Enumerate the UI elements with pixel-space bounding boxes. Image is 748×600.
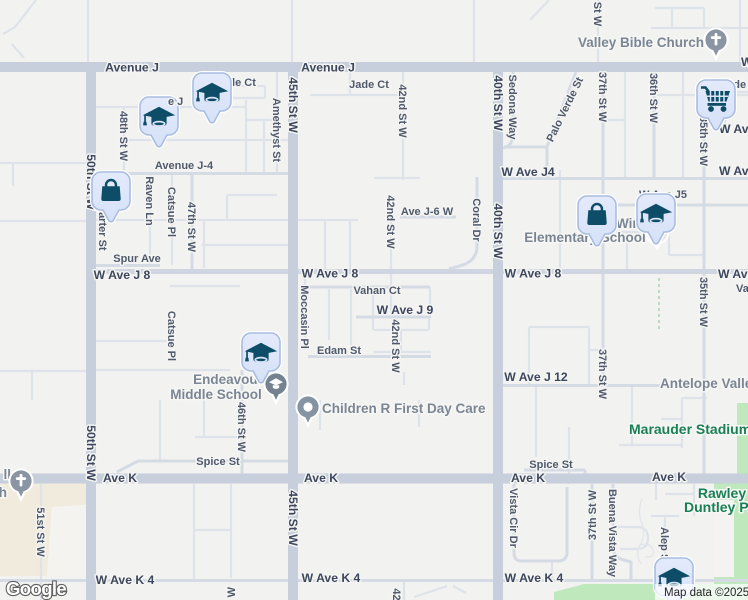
svg-text:W Ave J4: W Ave J4 — [719, 164, 748, 178]
svg-text:Edam St: Edam St — [317, 345, 361, 357]
svg-text:W Ave J 9: W Ave J 9 — [377, 303, 434, 317]
svg-text:Ave K: Ave K — [304, 471, 338, 485]
svg-text:W Ave: W Ave — [741, 55, 748, 69]
svg-text:Spur Ave: Spur Ave — [113, 253, 160, 265]
svg-text:Coral Dr: Coral Dr — [470, 198, 482, 242]
svg-text:Spice St: Spice St — [196, 456, 240, 468]
svg-text:36th St W: 36th St W — [647, 73, 659, 124]
svg-text:37th St W: 37th St W — [587, 489, 599, 540]
svg-text:Jade Ct: Jade Ct — [349, 79, 389, 91]
svg-text:Spice St: Spice St — [529, 459, 573, 471]
svg-text:Ave K: Ave K — [511, 471, 545, 485]
svg-text:35th St W: 35th St W — [697, 277, 709, 328]
svg-text:42nd St W: 42nd St W — [389, 319, 401, 373]
svg-text:42nd St W: 42nd St W — [396, 84, 408, 138]
svg-text:46th St W: 46th St W — [235, 402, 247, 453]
svg-text:Va: Va — [736, 283, 748, 295]
svg-text:35th St W: 35th St W — [697, 116, 709, 167]
svg-text:W Ave J4: W Ave J4 — [501, 165, 555, 179]
svg-text:Amethyst St: Amethyst St — [270, 98, 282, 163]
svg-text:W Ave K 4: W Ave K 4 — [505, 571, 564, 585]
svg-text:Raven Ln: Raven Ln — [143, 176, 155, 226]
svg-text:Avenue J: Avenue J — [301, 61, 355, 75]
svg-text:Avenue J: Avenue J — [105, 61, 159, 75]
svg-text:Valley Bible Church: Valley Bible Church — [578, 35, 704, 50]
svg-text:Google: Google — [6, 578, 66, 599]
svg-text:W Ave K 4: W Ave K 4 — [96, 573, 155, 587]
svg-text:W Ave: W Ave — [719, 122, 748, 136]
svg-text:Middle School: Middle School — [170, 387, 262, 402]
svg-text:Vahan Ct: Vahan Ct — [353, 285, 400, 297]
svg-text:Ave J-6 W: Ave J-6 W — [401, 206, 454, 218]
svg-text:40th St W: 40th St W — [491, 75, 505, 131]
svg-text:37th St W: 37th St W — [596, 72, 608, 123]
svg-text:W Ave J 8: W Ave J 8 — [505, 267, 562, 281]
svg-text:47th St W: 47th St W — [185, 202, 197, 253]
svg-text:45th St W: 45th St W — [286, 490, 300, 546]
svg-text:W Ave K 4: W Ave K 4 — [302, 571, 361, 585]
svg-text:W Ave J 8: W Ave J 8 — [302, 267, 359, 281]
svg-text:h: h — [0, 485, 7, 500]
svg-text:Avenue J-4: Avenue J-4 — [155, 160, 214, 172]
svg-text:42nd St W: 42nd St W — [384, 195, 396, 249]
svg-text:51st St W: 51st St W — [34, 507, 46, 557]
svg-text:40th St W: 40th St W — [491, 203, 505, 259]
svg-text:Marauder Stadium: Marauder Stadium — [629, 421, 748, 437]
svg-text:Antelope Valley: Antelope Valley — [660, 376, 748, 391]
svg-text:Catsue Pl: Catsue Pl — [165, 311, 177, 361]
svg-text:Duntley Park: Duntley Park — [684, 499, 748, 515]
svg-text:50th St W: 50th St W — [84, 425, 98, 481]
svg-text:W Ave J 12: W Ave J 12 — [504, 370, 568, 384]
svg-text:Buena Vista Way: Buena Vista Way — [606, 489, 618, 578]
svg-text:42nd St W: 42nd St W — [390, 588, 402, 600]
svg-text:37th St W: 37th St W — [596, 349, 608, 400]
svg-text:Children R First Day Care: Children R First Day Care — [322, 401, 486, 416]
svg-text:Ave K: Ave K — [652, 470, 686, 484]
svg-text:Vista Cir Dr: Vista Cir Dr — [507, 488, 519, 548]
svg-text:48th St W: 48th St W — [117, 111, 129, 162]
svg-text:e J: e J — [168, 96, 183, 108]
svg-text:Map data ©2025: Map data ©2025 — [664, 587, 748, 599]
svg-text:45th St W: 45th St W — [286, 77, 300, 133]
svg-text:46th St W: 46th St W — [226, 586, 238, 600]
svg-text:Sedona Way: Sedona Way — [506, 75, 518, 141]
svg-text:Catsue Pl: Catsue Pl — [165, 187, 177, 237]
svg-text:W Ave J 8: W Ave J 8 — [718, 267, 748, 281]
svg-text:W Ave J 8: W Ave J 8 — [94, 268, 151, 282]
svg-text:Ave K: Ave K — [103, 471, 137, 485]
svg-text:Moccasin Pl: Moccasin Pl — [298, 285, 310, 349]
svg-text:St W: St W — [591, 2, 603, 27]
